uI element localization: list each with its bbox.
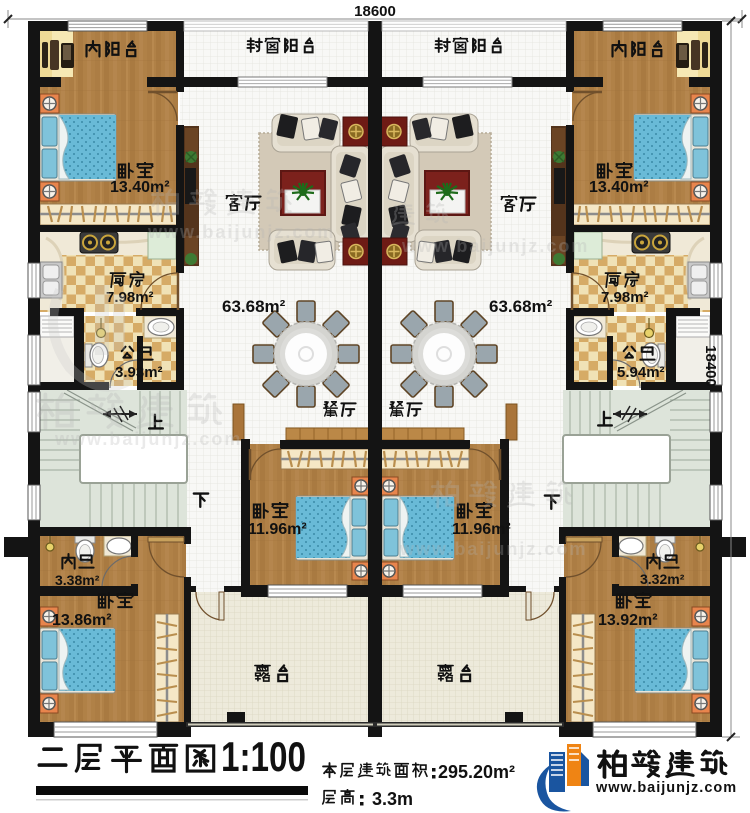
svg-text:3.93m²: 3.93m² bbox=[115, 364, 163, 381]
svg-text:11.96m²: 11.96m² bbox=[452, 521, 511, 538]
svg-text:63.68m²: 63.68m² bbox=[222, 297, 286, 316]
svg-text:www.baijunjz.com: www.baijunjz.com bbox=[401, 236, 589, 256]
svg-text:1:100: 1:100 bbox=[221, 733, 306, 780]
svg-text:11.96m²: 11.96m² bbox=[248, 521, 307, 538]
svg-text:18400: 18400 bbox=[702, 345, 719, 387]
svg-text:3.38m²: 3.38m² bbox=[55, 572, 100, 588]
svg-text:www.baijunjz.com: www.baijunjz.com bbox=[595, 780, 737, 796]
svg-text:www.baijunjz.com: www.baijunjz.com bbox=[147, 222, 335, 242]
svg-text:18600: 18600 bbox=[354, 3, 396, 20]
svg-text:13.86m²: 13.86m² bbox=[52, 612, 112, 629]
svg-text:3.3m: 3.3m bbox=[372, 789, 413, 809]
svg-text:13.40m²: 13.40m² bbox=[589, 179, 649, 196]
svg-text:7.98m²: 7.98m² bbox=[601, 289, 649, 306]
svg-text:13.92m²: 13.92m² bbox=[598, 612, 658, 629]
svg-text:295.20m²: 295.20m² bbox=[438, 762, 515, 782]
svg-text:5.94m²: 5.94m² bbox=[617, 364, 665, 381]
svg-text:63.68m²: 63.68m² bbox=[489, 297, 553, 316]
svg-text:www.baijunjz.com: www.baijunjz.com bbox=[54, 429, 242, 449]
svg-text:www.baijunjz.com: www.baijunjz.com bbox=[399, 539, 587, 559]
svg-text:3.32m²: 3.32m² bbox=[640, 571, 685, 587]
